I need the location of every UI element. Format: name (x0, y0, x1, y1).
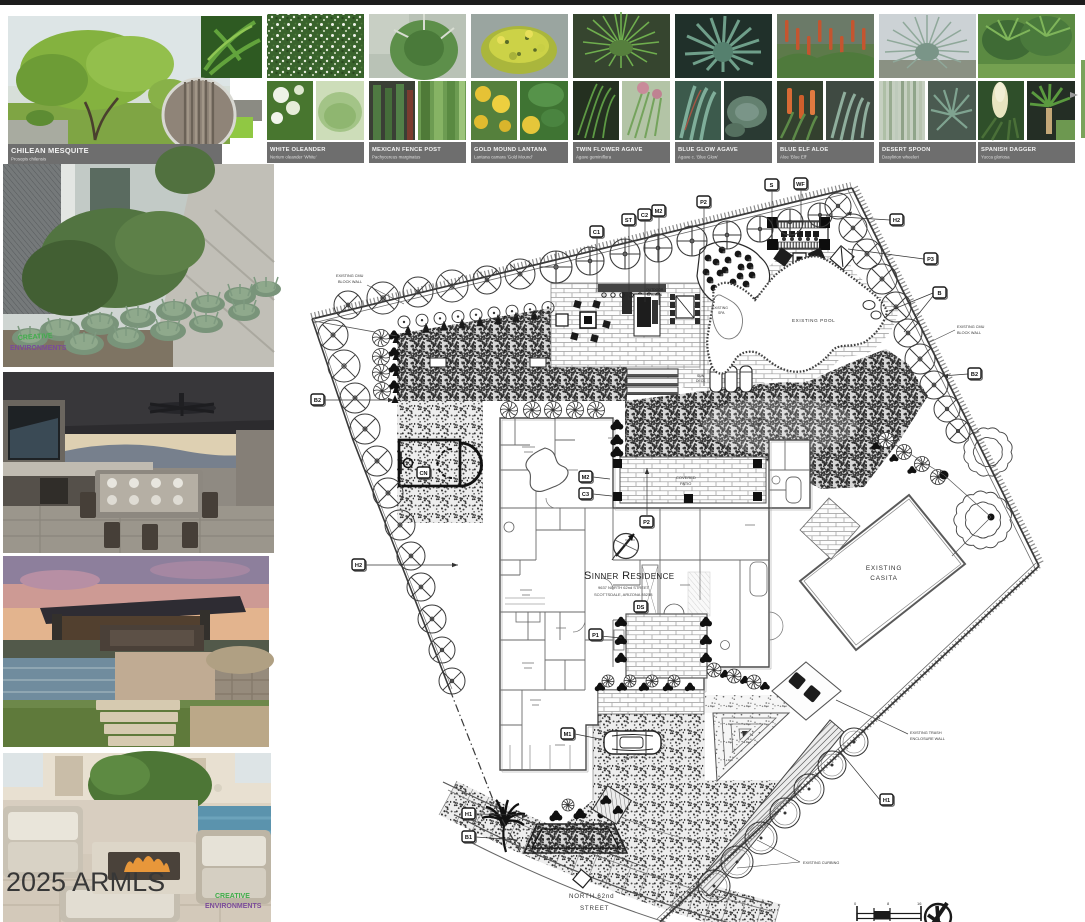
svg-text:EXISTING: EXISTING (866, 565, 902, 572)
svg-text:P2: P2 (700, 200, 707, 206)
svg-text:PATIO: PATIO (680, 481, 691, 486)
svg-text:BLUE ELF ALOE: BLUE ELF ALOE (780, 147, 828, 153)
svg-text:H2: H2 (355, 563, 362, 569)
svg-text:Prosopis chilensis: Prosopis chilensis (11, 157, 47, 162)
svg-text:CN: CN (419, 471, 427, 477)
svg-text:MEXICAN FENCE POST: MEXICAN FENCE POST (372, 147, 441, 153)
svg-text:WF: WF (796, 182, 805, 188)
svg-text:NORTH 62nd: NORTH 62nd (569, 893, 614, 900)
svg-text:CHILEAN MESQUITE: CHILEAN MESQUITE (11, 146, 89, 155)
svg-text:BLOCK WALL: BLOCK WALL (957, 331, 981, 335)
svg-text:EXISTING CURBING: EXISTING CURBING (803, 861, 839, 865)
svg-text:Agave c. 'Blue Glow': Agave c. 'Blue Glow' (678, 155, 718, 160)
svg-text:EXISTING CMU: EXISTING CMU (957, 325, 985, 329)
svg-text:P1: P1 (592, 633, 599, 639)
svg-text:DESERT SPOON: DESERT SPOON (882, 147, 930, 153)
svg-text:SPA: SPA (718, 311, 725, 315)
svg-text:EXISTING POOL: EXISTING POOL (792, 318, 835, 323)
svg-text:H2: H2 (893, 218, 900, 224)
svg-text:STREET: STREET (580, 905, 609, 912)
svg-text:TURF: TURF (752, 423, 762, 427)
svg-text:BLOCK WALL: BLOCK WALL (338, 280, 362, 284)
svg-text:BLUE GLOW AGAVE: BLUE GLOW AGAVE (678, 147, 738, 153)
svg-text:ARTIFICIAL: ARTIFICIAL (748, 417, 767, 421)
svg-text:P2: P2 (643, 520, 650, 526)
svg-text:SUN: SUN (697, 374, 705, 378)
svg-text:CASITA: CASITA (870, 575, 897, 582)
svg-text:EXISTING CMU: EXISTING CMU (336, 274, 364, 278)
svg-text:B2: B2 (314, 398, 321, 404)
svg-text:2025 ARMLS: 2025 ARMLS (6, 867, 165, 897)
svg-text:GOLD MOUND LANTANA: GOLD MOUND LANTANA (474, 147, 548, 153)
svg-text:Lantana camara 'Gold Mound': Lantana camara 'Gold Mound' (474, 155, 533, 160)
svg-text:ST: ST (625, 218, 633, 224)
svg-text:Yucca gloriosa: Yucca gloriosa (981, 155, 1010, 160)
svg-text:Sinner Residence: Sinner Residence (584, 570, 675, 582)
svg-text:M2: M2 (655, 209, 663, 215)
svg-text:CREATIVE: CREATIVE (215, 893, 250, 900)
svg-text:DS: DS (637, 605, 645, 611)
svg-text:ENCLOSURE WALL: ENCLOSURE WALL (910, 737, 945, 741)
svg-text:ENVIRONMENTS: ENVIRONMENTS (10, 345, 67, 352)
svg-text:16: 16 (917, 901, 922, 906)
svg-text:P3: P3 (927, 257, 934, 263)
svg-text:Nerium oleander 'White': Nerium oleander 'White' (270, 155, 317, 160)
svg-text:H1: H1 (883, 798, 890, 804)
svg-text:C2: C2 (641, 213, 648, 219)
svg-text:C1: C1 (593, 230, 600, 236)
svg-text:B: B (937, 291, 941, 297)
svg-text:ENVIRONMENTS: ENVIRONMENTS (205, 903, 262, 910)
svg-text:Dasylirion wheeleri: Dasylirion wheeleri (882, 155, 919, 160)
svg-text:H1: H1 (465, 812, 472, 818)
svg-text:B1: B1 (465, 835, 472, 841)
svg-text:Agave geminiflora: Agave geminiflora (576, 155, 612, 160)
svg-text:EXISTING TRASH: EXISTING TRASH (910, 731, 942, 735)
svg-text:DECK: DECK (696, 379, 706, 383)
svg-text:Pachycereus marginatus: Pachycereus marginatus (372, 155, 421, 160)
svg-text:SPANISH DAGGER: SPANISH DAGGER (981, 147, 1037, 153)
svg-text:M1: M1 (564, 732, 572, 738)
svg-text:OUTDOOR: OUTDOOR (646, 288, 664, 292)
svg-text:Aloe 'Blue Elf': Aloe 'Blue Elf' (780, 155, 807, 160)
svg-text:TWIN FLOWER AGAVE: TWIN FLOWER AGAVE (576, 147, 643, 153)
svg-text:COVERED: COVERED (676, 475, 696, 480)
svg-text:B2: B2 (971, 372, 978, 378)
svg-text:KITCHEN: KITCHEN (647, 293, 662, 297)
svg-text:WHITE OLEANDER: WHITE OLEANDER (270, 147, 326, 153)
svg-text:C3: C3 (582, 492, 589, 498)
svg-text:9637 NORTH 62nd STREET: 9637 NORTH 62nd STREET (598, 585, 650, 590)
svg-text:S: S (770, 183, 774, 189)
svg-text:M2: M2 (582, 475, 590, 481)
svg-text:SCOTTSDALE, ARIZONA 85258: SCOTTSDALE, ARIZONA 85258 (594, 592, 653, 597)
svg-text:EXISTING: EXISTING (712, 306, 728, 310)
